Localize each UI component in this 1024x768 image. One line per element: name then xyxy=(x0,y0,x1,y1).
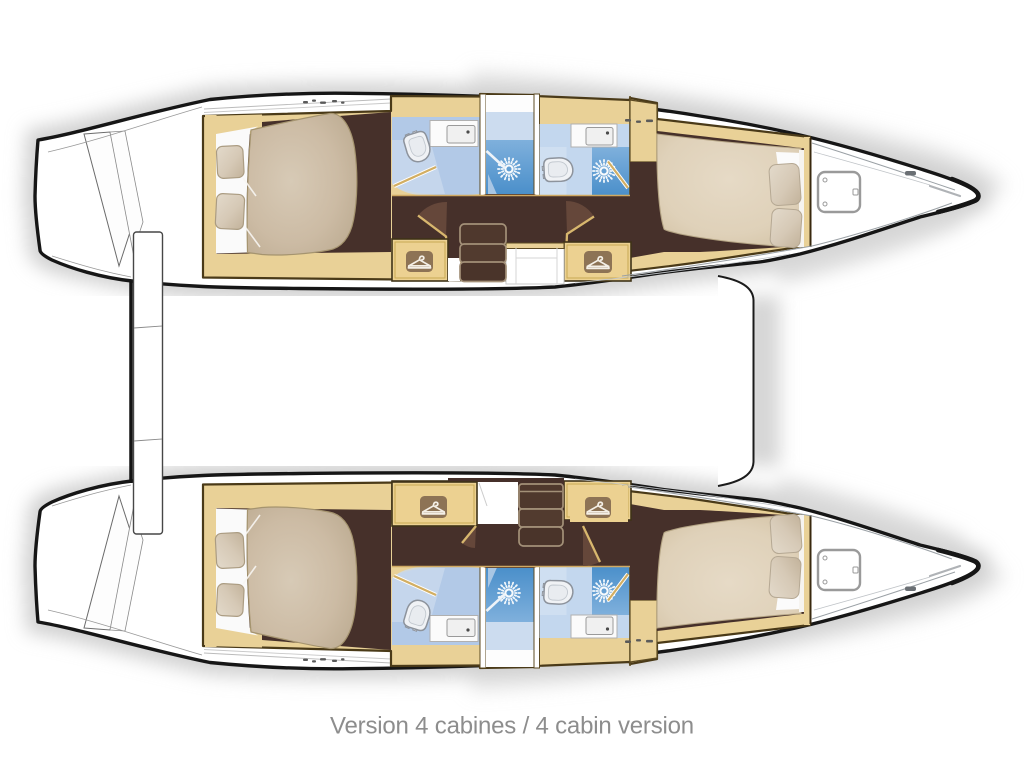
svg-text:Version 4 cabines / 4 cabin ve: Version 4 cabines / 4 cabin version xyxy=(330,713,694,740)
